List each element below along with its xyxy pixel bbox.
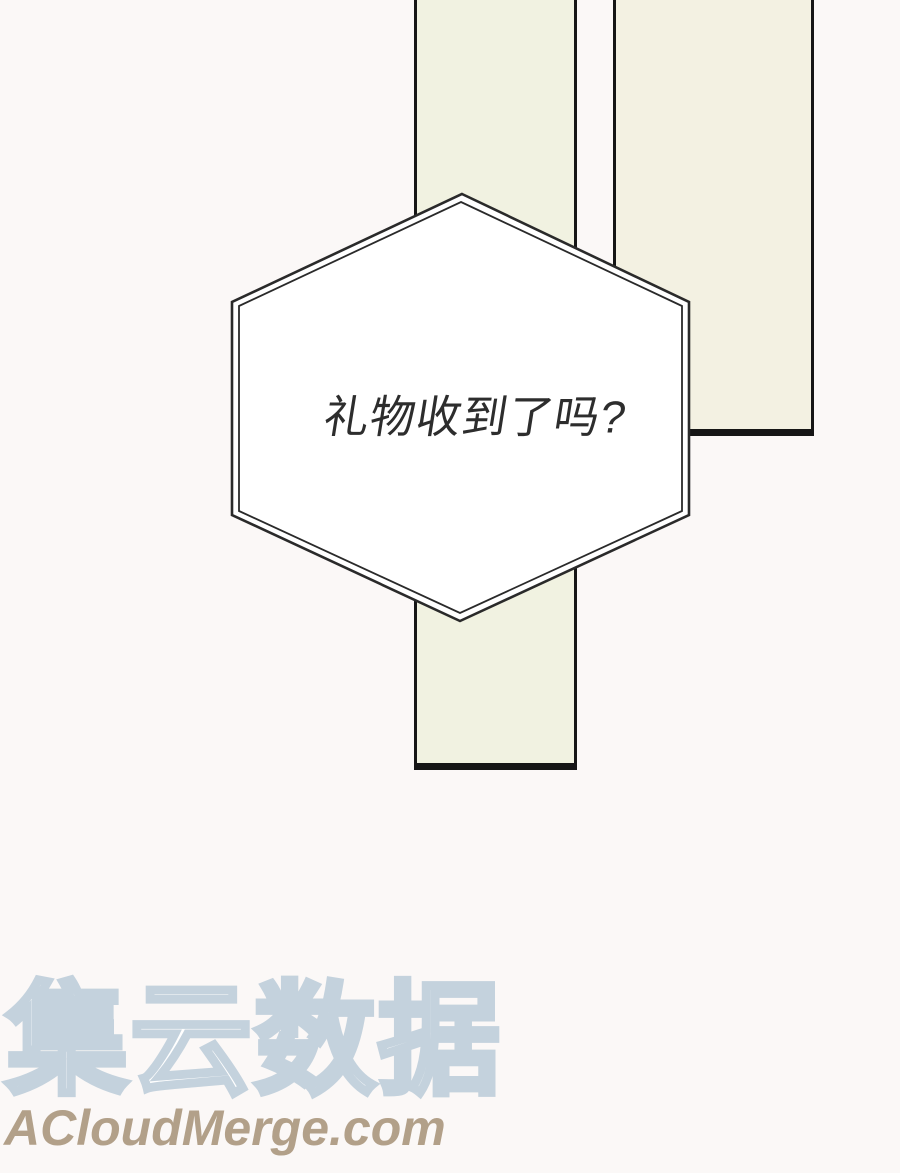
watermark-url-text: ACloudMerge.com — [4, 1103, 446, 1153]
watermark-brand-text: 集云数据 — [6, 980, 502, 1102]
comic-panel: 礼物收到了吗? 集云数据 ACloudMerge.com — [0, 0, 900, 1173]
speech-bubble-text: 礼物收到了吗? — [320, 381, 632, 446]
